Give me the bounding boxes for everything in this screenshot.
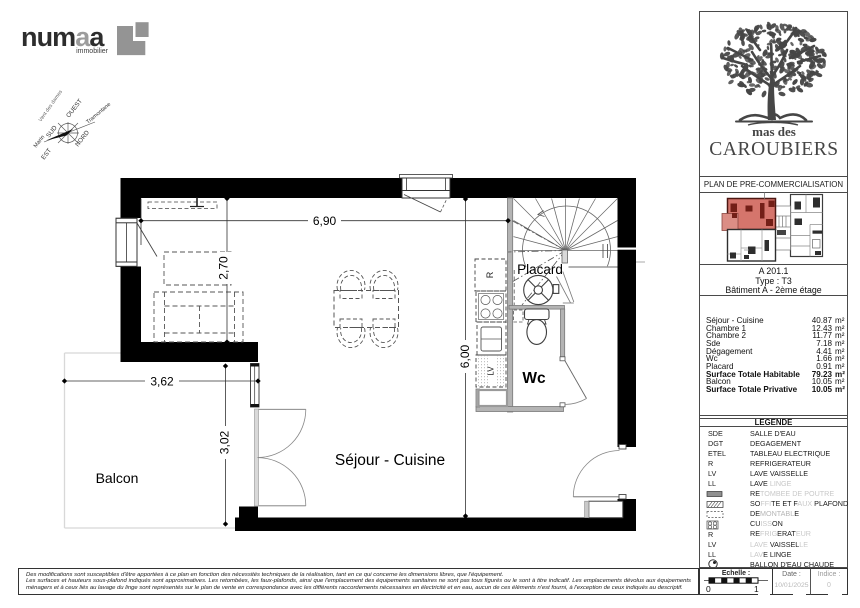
svg-text:6,90: 6,90 bbox=[313, 214, 337, 228]
svg-text:6,00: 6,00 bbox=[458, 344, 472, 368]
svg-text:R: R bbox=[485, 271, 495, 278]
svg-text:LV: LV bbox=[487, 366, 496, 376]
svg-text:Placard: Placard bbox=[517, 262, 563, 277]
svg-text:2,70: 2,70 bbox=[217, 256, 231, 280]
svg-text:Wc: Wc bbox=[522, 370, 546, 387]
svg-text:3,02: 3,02 bbox=[218, 430, 232, 454]
svg-text:Balcon: Balcon bbox=[96, 470, 139, 486]
svg-text:3,62: 3,62 bbox=[150, 374, 174, 388]
svg-text:Séjour - Cuisine: Séjour - Cuisine bbox=[335, 452, 445, 469]
